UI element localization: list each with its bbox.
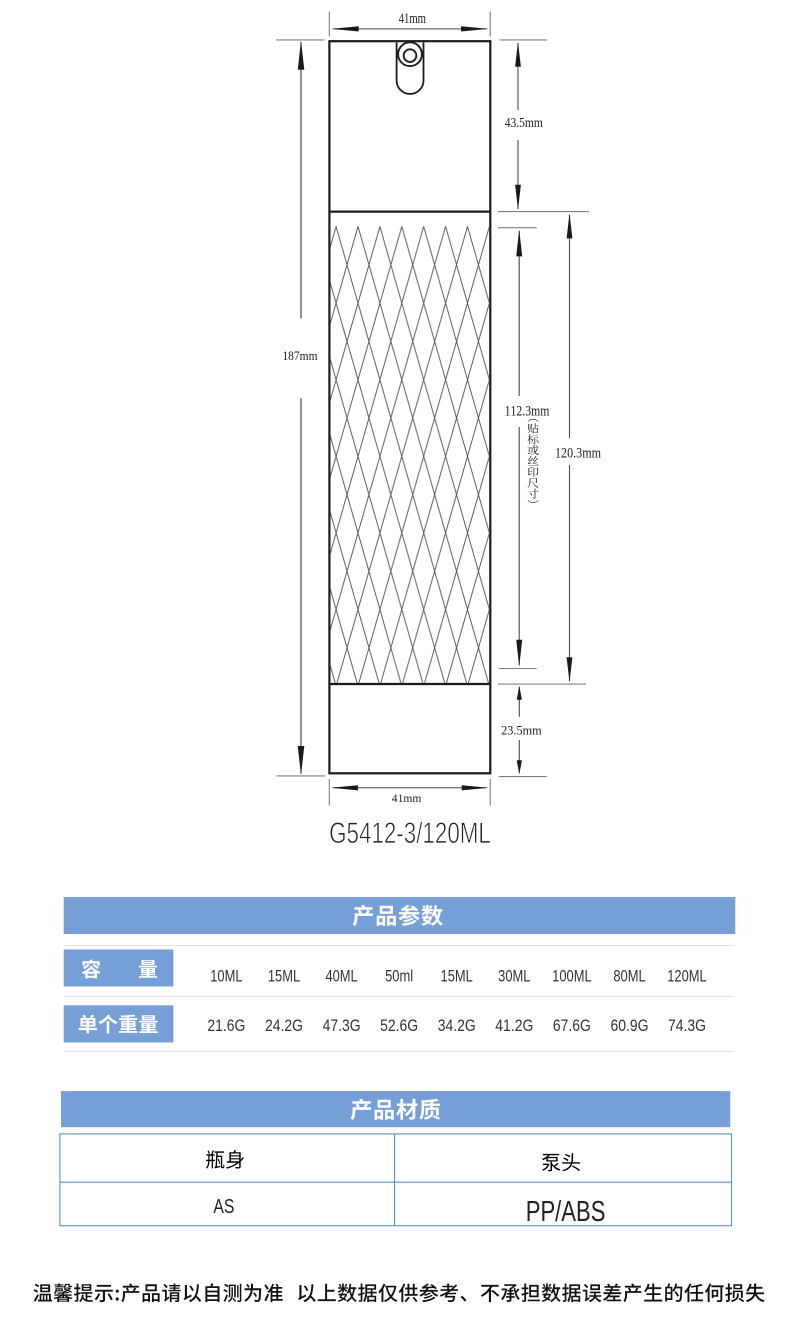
svg-text:60.9G: 60.9G <box>611 1016 649 1035</box>
svg-text:112.3mm: 112.3mm <box>505 403 550 419</box>
svg-text:47.3G: 47.3G <box>323 1016 361 1035</box>
svg-text:80ML: 80ML <box>613 966 645 985</box>
svg-text:187mm: 187mm <box>282 349 317 363</box>
svg-text:50ml: 50ml <box>385 966 413 985</box>
svg-text:30ML: 30ML <box>498 966 530 985</box>
svg-text:40ML: 40ML <box>325 966 357 985</box>
svg-text:43.5mm: 43.5mm <box>505 115 543 130</box>
svg-text:52.6G: 52.6G <box>380 1016 418 1035</box>
svg-text:41.2G: 41.2G <box>495 1016 533 1035</box>
svg-text:34.2G: 34.2G <box>438 1016 476 1035</box>
svg-text:67.6G: 67.6G <box>553 1016 591 1035</box>
svg-text:15ML: 15ML <box>268 966 300 985</box>
svg-text:AS: AS <box>213 1195 234 1218</box>
svg-text:100ML: 100ML <box>552 966 592 985</box>
svg-text:10ML: 10ML <box>210 966 242 985</box>
svg-text:24.2G: 24.2G <box>265 1016 303 1035</box>
svg-text:PP/ABS: PP/ABS <box>526 1196 606 1228</box>
svg-text:23.5mm: 23.5mm <box>501 723 542 738</box>
svg-text:120.3mm: 120.3mm <box>555 446 602 462</box>
svg-text:74.3G: 74.3G <box>668 1016 706 1035</box>
svg-text:41mm: 41mm <box>399 11 427 27</box>
svg-text:41mm: 41mm <box>392 791 422 805</box>
svg-text:G5412-3/120ML: G5412-3/120ML <box>329 817 491 850</box>
svg-text:15ML: 15ML <box>441 966 473 985</box>
svg-text:120ML: 120ML <box>667 966 707 985</box>
svg-text:21.6G: 21.6G <box>207 1016 245 1035</box>
